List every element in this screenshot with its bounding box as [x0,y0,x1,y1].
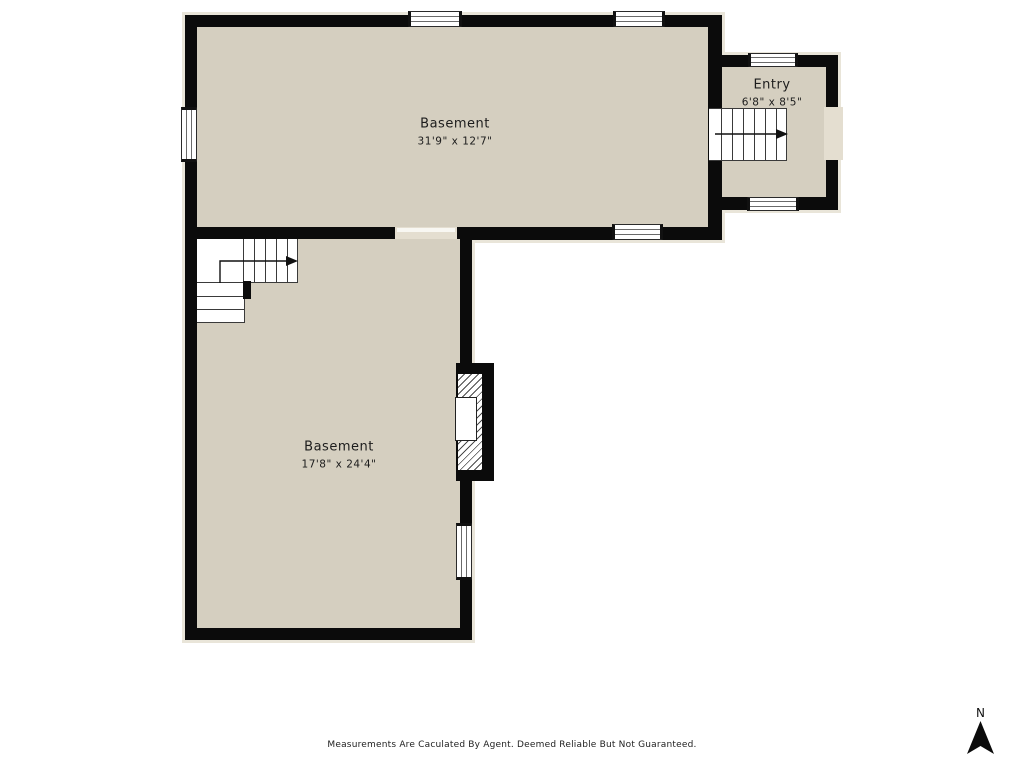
room-dimensions: 31'9" x 12'7" [418,136,493,148]
entry-stair-direction-arrow-icon [712,127,790,141]
fireplace-firebox [455,397,477,441]
basement-stair-direction-arrow-icon [216,254,304,286]
window-lower-right [456,523,472,580]
floor-plan-canvas: Basement 31'9" x 12'7" Basement 17'8" x … [0,0,1024,768]
room-label-basement-lower: Basement 17'8" x 24'4" [302,440,377,471]
room-dimensions: 6'8" x 8'5" [742,97,803,109]
north-arrow-icon [967,721,994,754]
doorway-basement-threshold [397,228,455,232]
room-name: Entry [742,78,803,93]
room-label-entry: Entry 6'8" x 8'5" [742,78,803,109]
stair-tread [197,296,245,297]
window-upper-top-right [613,11,665,27]
room-name: Basement [302,440,377,455]
room-name: Basement [418,117,493,132]
window-entry-bottom [747,197,799,211]
disclaimer-text: Measurements Are Caculated By Agent. Dee… [0,740,1024,750]
room-dimensions: 17'8" x 24'4" [302,459,377,471]
window-upper-top-left [408,11,462,27]
window-entry-top [748,53,798,67]
room-label-basement-upper: Basement 31'9" x 12'7" [418,117,493,148]
stair-tread [197,309,245,310]
north-label: N [967,706,994,720]
entry-door-opening [824,107,843,160]
window-upper-left [181,107,197,162]
window-upper-bottom [612,224,663,240]
basement-staircase-lower-flight [197,283,245,323]
